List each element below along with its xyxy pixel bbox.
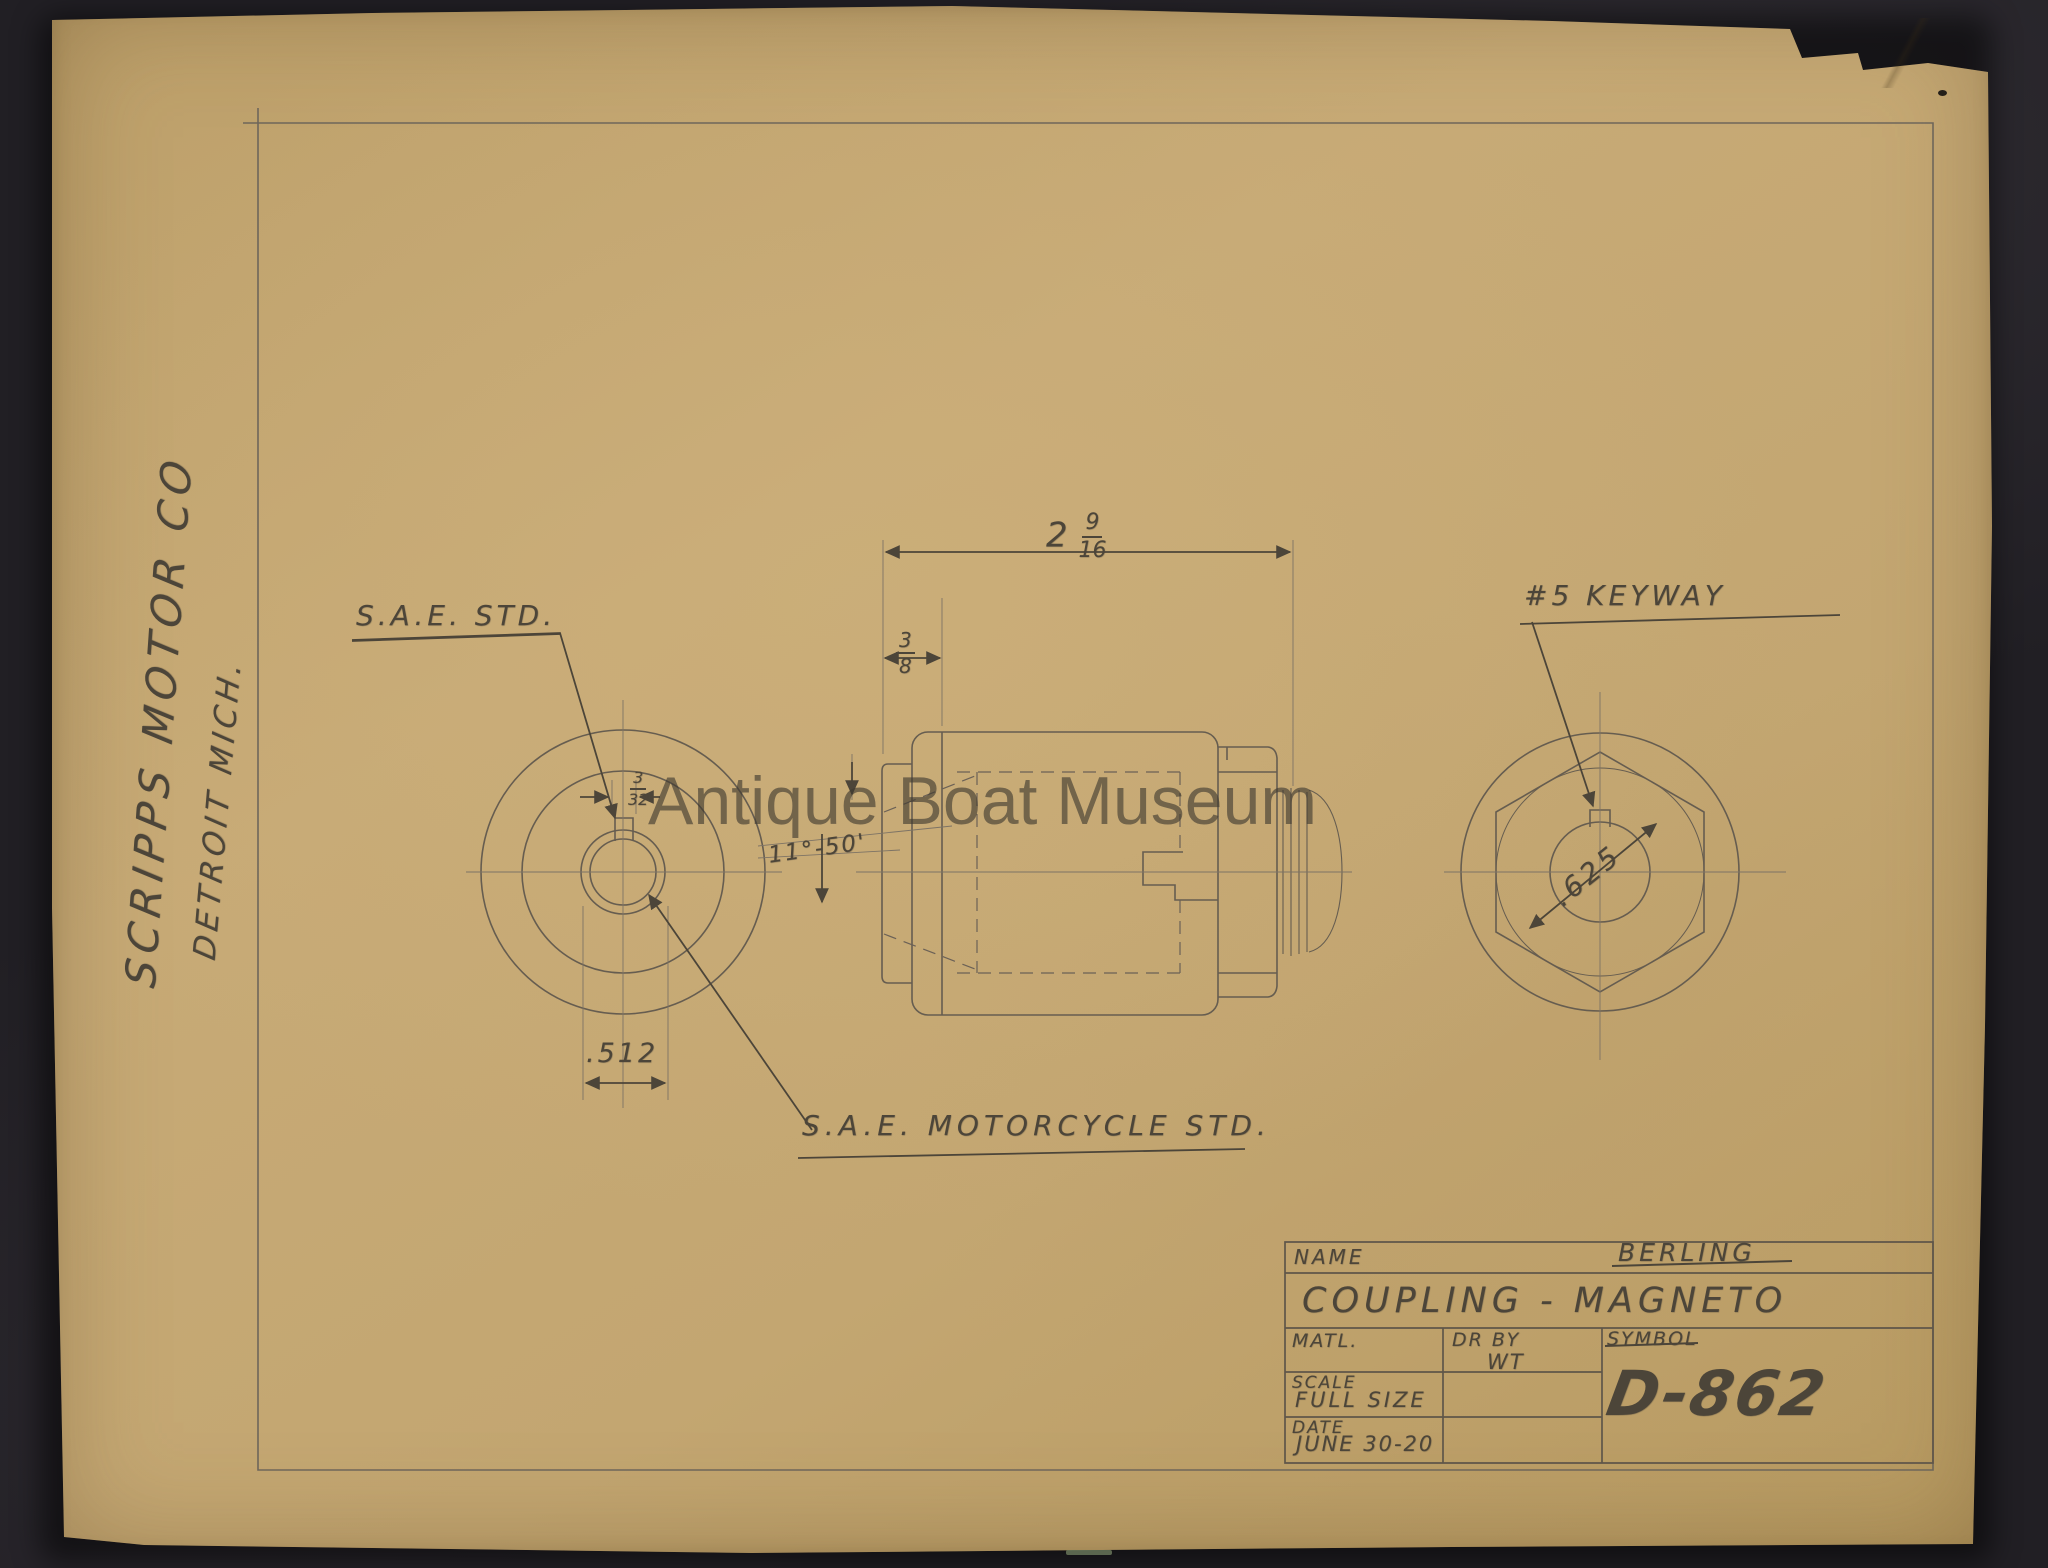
- scanned-drawing-photo: SCRIPPS MOTOR CO DETROIT MICH. S.A.E. ST…: [0, 0, 2048, 1568]
- left-end-view: [352, 633, 1245, 1158]
- keyway-width-dim: 332: [628, 770, 648, 808]
- sae-std-label: S.A.E. STD.: [356, 602, 556, 630]
- titleblock-scale-value: FULL SIZE: [1295, 1390, 1427, 1411]
- titleblock-drby-value: WT: [1487, 1352, 1525, 1373]
- titleblock-drawing-number: D-862: [1603, 1363, 1832, 1425]
- flange-length-dim: 38: [896, 630, 915, 676]
- bore-diameter-dim: .512: [586, 1040, 658, 1067]
- keyway-note-label: #5 KEYWAY: [1524, 582, 1726, 610]
- titleblock-symbol-label: SYMBOL: [1607, 1330, 1698, 1349]
- titleblock-matl-label: MATL.: [1292, 1332, 1358, 1351]
- overall-length-whole: 2: [1046, 516, 1068, 556]
- titleblock-drby-label: DR BY: [1452, 1331, 1520, 1350]
- sae-motorcycle-label: S.A.E. MOTORCYCLE STD.: [802, 1112, 1271, 1140]
- titleblock-date-value: JUNE 30-20: [1296, 1434, 1434, 1455]
- right-end-view: [1444, 615, 1840, 1060]
- overall-length-dim: 2 916: [1046, 512, 1106, 562]
- titleblock-maker-value: BERLING: [1618, 1240, 1756, 1265]
- museum-watermark: Antique Boat Museum: [648, 762, 1317, 840]
- titleblock-name-label: NAME: [1294, 1247, 1365, 1267]
- titleblock-part-title: COUPLING - MAGNETO: [1302, 1284, 1787, 1319]
